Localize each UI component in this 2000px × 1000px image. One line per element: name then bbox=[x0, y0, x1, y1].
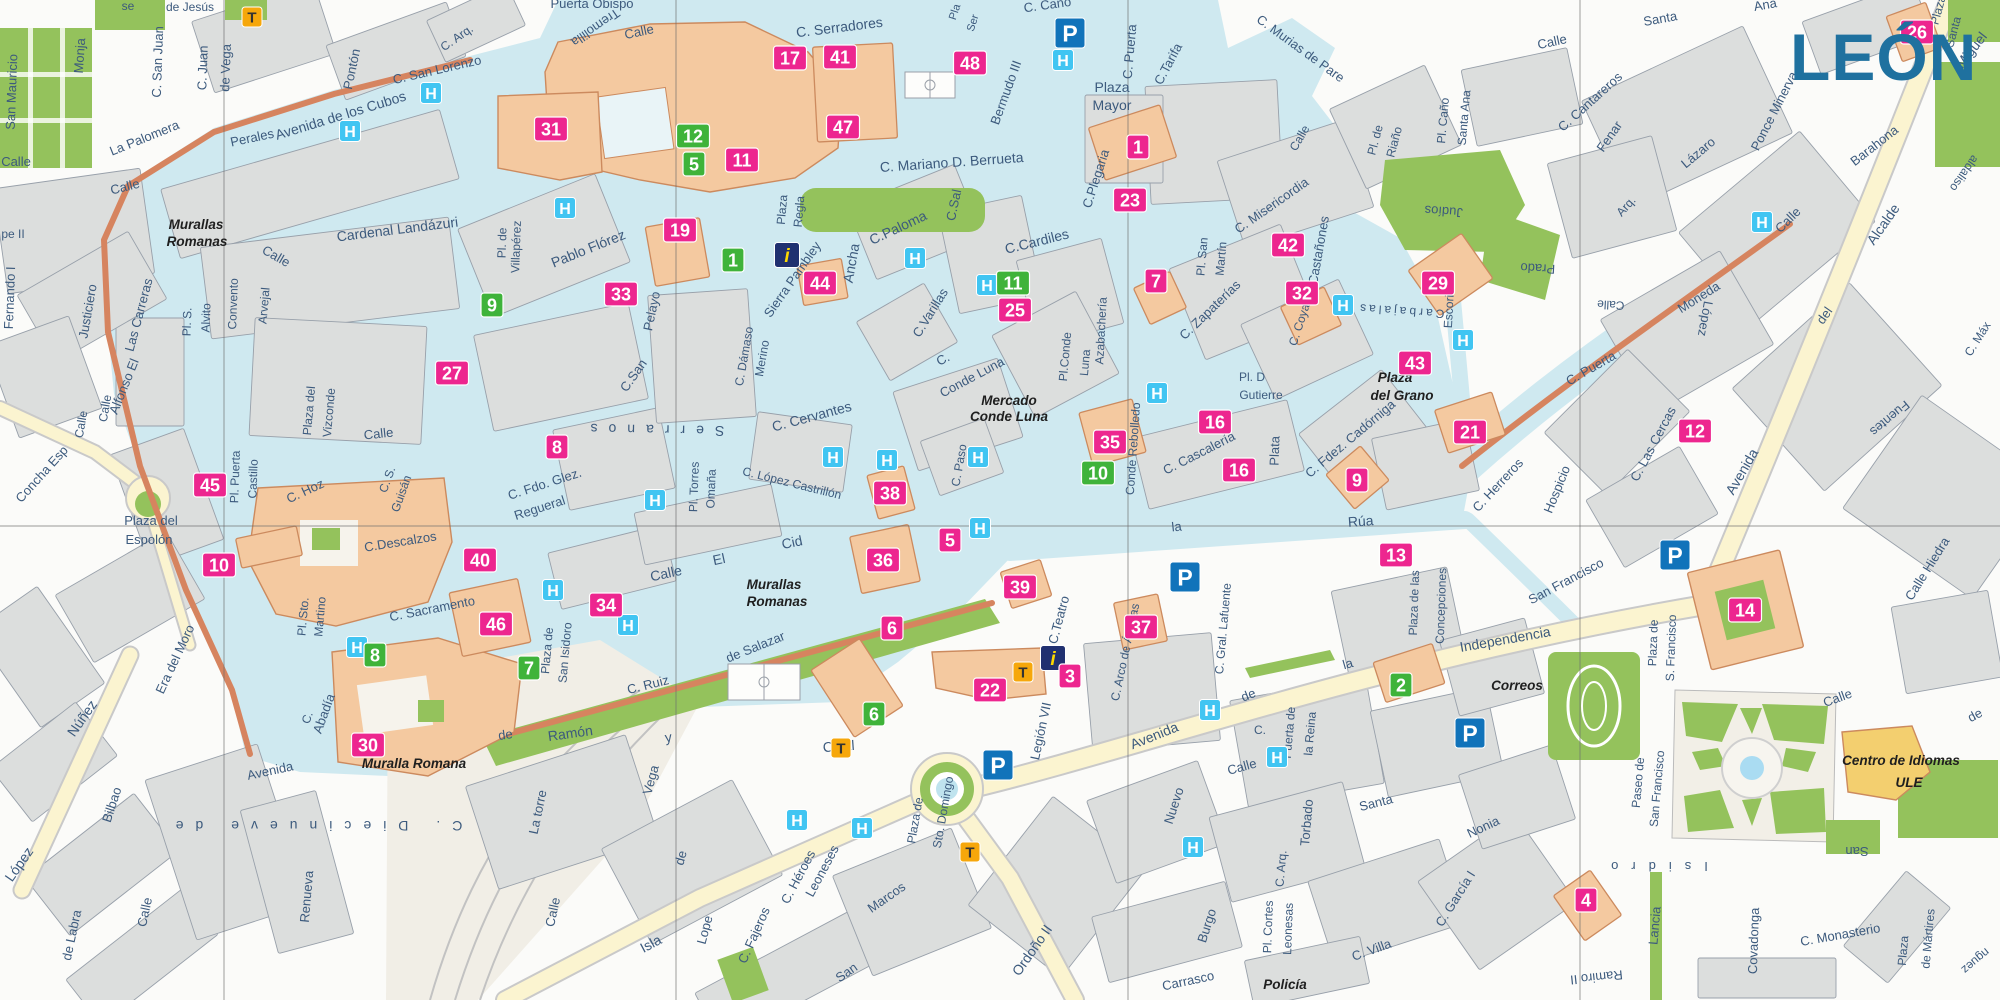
poi-marker-pink-9: 9 bbox=[1346, 468, 1368, 492]
svg-text:8: 8 bbox=[370, 646, 380, 666]
street-label: Castillo bbox=[245, 459, 260, 499]
svg-text:T: T bbox=[965, 844, 974, 861]
svg-text:H: H bbox=[1271, 750, 1283, 767]
street-label: Concepciones bbox=[1433, 568, 1450, 645]
svg-text:T: T bbox=[836, 740, 845, 757]
poi-marker-pink-16: 16 bbox=[1223, 458, 1256, 482]
street-label: Regla bbox=[791, 195, 808, 228]
street-label: C. Diecinueve de bbox=[164, 818, 463, 834]
svg-text:27: 27 bbox=[442, 364, 462, 384]
svg-text:H: H bbox=[974, 521, 986, 538]
poi-marker-pink-47: 47 bbox=[827, 115, 860, 139]
svg-text:i: i bbox=[1050, 649, 1056, 670]
hotel-icon: H bbox=[645, 490, 666, 511]
poi-marker-pink-16: 16 bbox=[1199, 410, 1232, 434]
parking-icon: P bbox=[1055, 18, 1085, 48]
area-label: Conde Luna bbox=[970, 409, 1048, 424]
poi-marker-pink-31: 31 bbox=[535, 117, 568, 141]
hotel-icon: H bbox=[421, 83, 442, 104]
street-label: San Mauricio bbox=[3, 54, 21, 130]
hotel-icon: H bbox=[970, 518, 991, 539]
svg-text:H: H bbox=[547, 583, 559, 600]
area-label: Mercado bbox=[981, 393, 1037, 408]
svg-text:6: 6 bbox=[869, 705, 879, 725]
svg-text:P: P bbox=[1177, 564, 1192, 590]
poi-marker-pink-13: 13 bbox=[1380, 543, 1413, 567]
street-label: C. San Juan bbox=[149, 26, 166, 98]
svg-text:T: T bbox=[247, 9, 256, 26]
svg-text:4: 4 bbox=[1581, 891, 1591, 911]
poi-marker-pink-10: 10 bbox=[203, 553, 236, 577]
transit-icon: T bbox=[831, 738, 851, 758]
street-label: Serranos bbox=[579, 421, 724, 440]
poi-marker-pink-37: 37 bbox=[1125, 615, 1158, 639]
svg-text:46: 46 bbox=[486, 615, 506, 635]
transit-icon: T bbox=[1013, 662, 1033, 682]
svg-text:H: H bbox=[827, 450, 839, 467]
parking-icon: P bbox=[1455, 718, 1485, 748]
svg-text:H: H bbox=[559, 201, 571, 218]
svg-text:22: 22 bbox=[980, 681, 1000, 701]
svg-text:H: H bbox=[351, 640, 363, 657]
svg-text:13: 13 bbox=[1386, 546, 1406, 566]
street-label: de Jesús bbox=[166, 0, 214, 14]
hotel-icon: H bbox=[1200, 700, 1221, 721]
city-map[interactable]: sede JesúsSan MauricioMonjaC. San JuanC.… bbox=[0, 0, 2000, 1000]
street-label: San bbox=[1845, 844, 1868, 859]
svg-text:H: H bbox=[1204, 703, 1216, 720]
hotel-icon: H bbox=[1752, 212, 1773, 233]
poi-marker-green-1: 1 bbox=[722, 248, 744, 272]
svg-text:32: 32 bbox=[1292, 284, 1312, 304]
svg-text:23: 23 bbox=[1120, 191, 1140, 211]
svg-text:H: H bbox=[344, 124, 356, 141]
street-label: C. Juan bbox=[194, 45, 211, 90]
area-label: Policía bbox=[1263, 977, 1307, 992]
area-label: Muralla Romana bbox=[362, 756, 467, 771]
parking-icon: P bbox=[1170, 562, 1200, 592]
svg-text:H: H bbox=[1756, 215, 1768, 232]
svg-text:40: 40 bbox=[470, 551, 490, 571]
svg-text:H: H bbox=[909, 251, 921, 268]
street-label: Rúa bbox=[1347, 512, 1374, 530]
area-label: Centro de Idiomas bbox=[1842, 753, 1960, 768]
street-label: Pl. Puerta bbox=[227, 450, 243, 503]
street-label: Plaza bbox=[1895, 935, 1912, 966]
hotel-icon: H bbox=[968, 447, 989, 468]
svg-text:1: 1 bbox=[728, 251, 738, 271]
hotel-icon: H bbox=[1183, 837, 1204, 858]
poi-marker-pink-44: 44 bbox=[804, 271, 837, 295]
poi-marker-pink-48: 48 bbox=[954, 51, 987, 75]
area-label: Romanas bbox=[167, 234, 228, 249]
poi-marker-pink-4: 4 bbox=[1575, 888, 1597, 912]
svg-text:48: 48 bbox=[960, 54, 980, 74]
street-label: Mayor bbox=[1093, 97, 1132, 113]
poi-marker-pink-23: 23 bbox=[1114, 188, 1147, 212]
svg-text:21: 21 bbox=[1460, 423, 1480, 443]
svg-text:i: i bbox=[784, 246, 790, 267]
poi-marker-green-9: 9 bbox=[481, 293, 503, 317]
poi-marker-pink-8: 8 bbox=[546, 435, 568, 459]
svg-text:16: 16 bbox=[1205, 413, 1225, 433]
hotel-icon: H bbox=[618, 615, 639, 636]
svg-text:19: 19 bbox=[670, 221, 690, 241]
svg-text:44: 44 bbox=[810, 274, 830, 294]
street-label: pe II bbox=[1, 227, 24, 241]
svg-text:29: 29 bbox=[1428, 274, 1448, 294]
svg-text:8: 8 bbox=[552, 438, 562, 458]
poi-marker-pink-1: 1 bbox=[1127, 135, 1149, 159]
street-label: Plaza bbox=[774, 194, 791, 225]
hotel-icon: H bbox=[1333, 295, 1354, 316]
info-icon: i bbox=[775, 243, 800, 268]
hotel-icon: H bbox=[340, 121, 361, 142]
poi-marker-pink-38: 38 bbox=[874, 481, 907, 505]
poi-marker-pink-36: 36 bbox=[867, 548, 900, 572]
street-label: Plaza de las bbox=[1406, 570, 1422, 636]
poi-marker-pink-21: 21 bbox=[1454, 420, 1487, 444]
svg-text:H: H bbox=[1337, 298, 1349, 315]
poi-marker-pink-6: 6 bbox=[881, 616, 903, 640]
poi-marker-green-11: 11 bbox=[997, 271, 1030, 295]
parking-icon: P bbox=[1660, 540, 1690, 570]
svg-text:16: 16 bbox=[1229, 461, 1249, 481]
poi-marker-pink-12: 12 bbox=[1679, 419, 1712, 443]
poi-marker-pink-39: 39 bbox=[1004, 575, 1037, 599]
poi-marker-pink-7: 7 bbox=[1145, 269, 1167, 293]
svg-text:P: P bbox=[1062, 20, 1077, 46]
poi-marker-pink-43: 43 bbox=[1399, 351, 1432, 375]
poi-marker-pink-30: 30 bbox=[352, 733, 385, 757]
poi-marker-green-5: 5 bbox=[683, 152, 705, 176]
hotel-icon: H bbox=[543, 580, 564, 601]
svg-text:T: T bbox=[1018, 664, 1027, 681]
poi-marker-pink-35: 35 bbox=[1094, 430, 1127, 454]
svg-text:41: 41 bbox=[830, 48, 850, 68]
svg-text:30: 30 bbox=[358, 736, 378, 756]
map-title: LEÓN bbox=[1790, 20, 1977, 94]
svg-text:2: 2 bbox=[1396, 676, 1406, 696]
area-label: Correos bbox=[1491, 678, 1543, 693]
area-label: Romanas bbox=[747, 594, 808, 609]
street-label: Luna bbox=[1077, 348, 1093, 376]
svg-text:9: 9 bbox=[1352, 471, 1362, 491]
poi-marker-green-12: 12 bbox=[677, 124, 710, 148]
poi-marker-green-7: 7 bbox=[518, 656, 540, 680]
svg-text:12: 12 bbox=[683, 127, 703, 147]
svg-text:P: P bbox=[1667, 542, 1682, 568]
svg-text:H: H bbox=[1057, 53, 1069, 70]
transit-icon: T bbox=[960, 842, 980, 862]
svg-text:H: H bbox=[1457, 333, 1469, 350]
hotel-icon: H bbox=[1267, 747, 1288, 768]
poi-marker-green-2: 2 bbox=[1390, 673, 1412, 697]
poi-marker-pink-42: 42 bbox=[1272, 233, 1305, 257]
svg-text:11: 11 bbox=[1003, 274, 1022, 294]
svg-text:12: 12 bbox=[1685, 422, 1705, 442]
street-label: Judíos bbox=[1424, 203, 1464, 221]
street-label: Alvito bbox=[198, 303, 213, 333]
area-label: Murallas bbox=[169, 217, 224, 232]
hotel-icon: H bbox=[977, 275, 998, 296]
svg-text:H: H bbox=[881, 453, 893, 470]
svg-text:7: 7 bbox=[1151, 272, 1161, 292]
hotel-icon: H bbox=[852, 818, 873, 839]
street-label: se bbox=[122, 0, 135, 13]
transit-icon: T bbox=[242, 7, 262, 27]
area-label: del Grano bbox=[1370, 388, 1433, 403]
svg-text:39: 39 bbox=[1010, 578, 1030, 598]
poi-marker-pink-45: 45 bbox=[194, 473, 227, 497]
poi-marker-green-6: 6 bbox=[863, 702, 885, 726]
svg-text:42: 42 bbox=[1278, 236, 1298, 256]
hotel-icon: H bbox=[877, 450, 898, 471]
poi-marker-pink-33: 33 bbox=[605, 282, 638, 306]
svg-text:H: H bbox=[856, 821, 868, 838]
street-label: Puerta Obispo bbox=[550, 0, 633, 11]
svg-text:1: 1 bbox=[1133, 138, 1143, 158]
street-label: Fernando I bbox=[1, 266, 18, 329]
hotel-icon: H bbox=[905, 248, 926, 269]
svg-text:H: H bbox=[622, 618, 634, 635]
street-label: Pl. S. bbox=[180, 307, 195, 336]
map-screenshot: sede JesúsSan MauricioMonjaC. San JuanC.… bbox=[0, 0, 2000, 1000]
svg-text:10: 10 bbox=[209, 556, 229, 576]
svg-text:H: H bbox=[425, 86, 437, 103]
poi-marker-pink-34: 34 bbox=[590, 593, 623, 617]
street-label: Leonesas bbox=[1280, 903, 1296, 956]
svg-text:35: 35 bbox=[1100, 433, 1120, 453]
hotel-icon: H bbox=[1147, 383, 1168, 404]
svg-text:36: 36 bbox=[873, 551, 893, 571]
street-label: Gutierre bbox=[1239, 388, 1283, 402]
street-label: Plaza de bbox=[1645, 619, 1661, 666]
street-label: Espolón bbox=[126, 532, 173, 547]
street-label: Calle bbox=[1, 154, 31, 169]
street-label: Covadonga bbox=[1745, 907, 1762, 975]
street-label: Prado bbox=[1520, 260, 1555, 277]
hotel-icon: H bbox=[787, 810, 808, 831]
svg-text:43: 43 bbox=[1405, 354, 1425, 374]
hotel-icon: H bbox=[555, 198, 576, 219]
poi-marker-pink-46: 46 bbox=[480, 612, 513, 636]
street-label: Plata bbox=[1266, 435, 1282, 466]
svg-text:6: 6 bbox=[887, 619, 897, 639]
poi-marker-pink-32: 32 bbox=[1286, 281, 1319, 305]
svg-text:H: H bbox=[1187, 840, 1199, 857]
svg-text:37: 37 bbox=[1131, 618, 1151, 638]
area-label: ULE bbox=[1896, 775, 1924, 790]
street-label: Plaza bbox=[1094, 79, 1129, 95]
svg-text:9: 9 bbox=[487, 296, 497, 316]
svg-text:11: 11 bbox=[732, 151, 751, 171]
street-label: Martín bbox=[1213, 241, 1230, 276]
street-label: Pl. Cortes bbox=[1260, 900, 1276, 953]
svg-text:H: H bbox=[981, 278, 993, 295]
street-label: C. bbox=[1254, 723, 1266, 737]
street-label: Plaza del bbox=[124, 513, 178, 528]
hotel-icon: H bbox=[1053, 50, 1074, 71]
poi-marker-pink-25: 25 bbox=[999, 298, 1032, 322]
svg-text:17: 17 bbox=[780, 49, 800, 69]
street-label: Omaña bbox=[703, 469, 718, 509]
hotel-icon: H bbox=[823, 447, 844, 468]
street-label: Pl. de bbox=[494, 227, 509, 258]
svg-text:33: 33 bbox=[611, 285, 631, 305]
svg-text:5: 5 bbox=[689, 155, 699, 175]
poi-marker-green-10: 10 bbox=[1082, 461, 1115, 485]
street-label: S. Francisco bbox=[1663, 614, 1679, 681]
street-label: Villapérez bbox=[508, 220, 524, 273]
street-label: de Vega bbox=[217, 43, 234, 92]
poi-marker-pink-40: 40 bbox=[464, 548, 497, 572]
svg-text:H: H bbox=[972, 450, 984, 467]
poi-marker-pink-29: 29 bbox=[1422, 271, 1455, 295]
street-label: Pl. D bbox=[1239, 370, 1265, 384]
street-label: Monja bbox=[71, 37, 88, 74]
poi-marker-pink-17: 17 bbox=[774, 46, 807, 70]
svg-text:31: 31 bbox=[541, 120, 561, 140]
street-label: de bbox=[497, 726, 513, 743]
svg-text:3: 3 bbox=[1065, 667, 1075, 687]
svg-text:38: 38 bbox=[880, 484, 900, 504]
poi-marker-green-8: 8 bbox=[364, 643, 386, 667]
svg-text:P: P bbox=[1462, 720, 1477, 746]
poi-marker-pink-22: 22 bbox=[974, 678, 1007, 702]
svg-text:14: 14 bbox=[1735, 601, 1755, 621]
svg-text:25: 25 bbox=[1005, 301, 1025, 321]
street-label: Calle bbox=[363, 425, 394, 443]
svg-text:45: 45 bbox=[200, 476, 220, 496]
svg-text:34: 34 bbox=[596, 596, 616, 616]
poi-marker-pink-5: 5 bbox=[939, 528, 961, 552]
svg-text:47: 47 bbox=[833, 118, 853, 138]
svg-text:P: P bbox=[990, 752, 1005, 778]
svg-text:10: 10 bbox=[1088, 464, 1108, 484]
poi-marker-pink-41: 41 bbox=[824, 45, 857, 69]
poi-marker-pink-11: 11 bbox=[726, 148, 759, 172]
poi-marker-pink-27: 27 bbox=[436, 361, 469, 385]
hotel-icon: H bbox=[1453, 330, 1474, 351]
street-label: Pl. Torres bbox=[686, 461, 702, 512]
parking-icon: P bbox=[983, 750, 1013, 780]
svg-text:H: H bbox=[1151, 386, 1163, 403]
svg-text:H: H bbox=[649, 493, 661, 510]
area-label: Murallas bbox=[747, 577, 802, 592]
poi-marker-pink-14: 14 bbox=[1729, 598, 1762, 622]
svg-text:7: 7 bbox=[524, 659, 534, 679]
svg-text:H: H bbox=[791, 813, 803, 830]
street-label: Calle bbox=[1596, 297, 1624, 312]
poi-marker-pink-3: 3 bbox=[1059, 664, 1081, 688]
poi-marker-pink-19: 19 bbox=[664, 218, 697, 242]
svg-text:5: 5 bbox=[945, 531, 955, 551]
street-label: Isidro bbox=[1598, 859, 1708, 874]
street-label: Convento bbox=[225, 278, 241, 330]
